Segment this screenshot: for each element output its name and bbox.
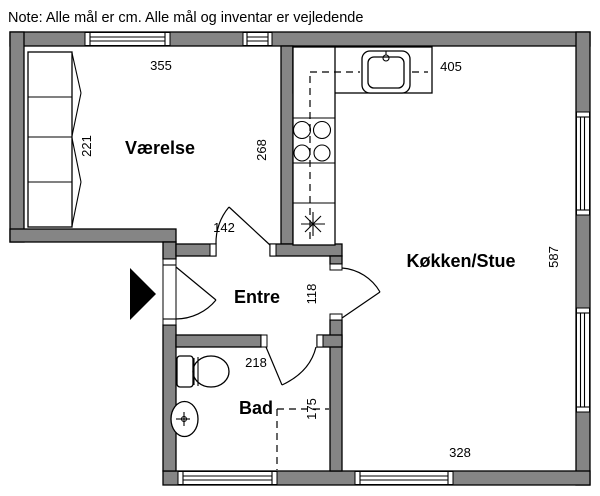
floorplan-page: Note: Alle mål er cm. Alle mål og invent… <box>0 0 600 496</box>
jamb <box>317 335 323 347</box>
dim-142: 142 <box>213 220 235 235</box>
dim-175: 175 <box>304 398 319 420</box>
dim-221: 221 <box>79 135 94 157</box>
jamb <box>330 264 342 270</box>
label-entre: Entre <box>234 287 280 307</box>
wall-vaerelse-entre-right <box>270 244 342 256</box>
dim-218: 218 <box>245 355 267 370</box>
washbasin-icon <box>171 402 198 437</box>
dim-328: 328 <box>449 445 471 460</box>
wall-entre-koekken-stub <box>330 256 342 264</box>
dim-118: 118 <box>304 284 319 305</box>
entrance-threshold <box>163 259 176 325</box>
jamb <box>270 244 276 256</box>
dim-587: 587 <box>546 246 561 268</box>
wall-step <box>10 229 176 242</box>
window-east-1 <box>577 112 590 215</box>
dim-355: 355 <box>150 58 172 73</box>
koekken-door-swing-icon <box>342 268 380 318</box>
jamb <box>330 314 342 320</box>
window-east-2 <box>577 308 590 412</box>
sink-icon <box>362 51 410 93</box>
wardrobe-icon <box>28 52 81 227</box>
toilet-icon <box>177 356 229 387</box>
entrance-arrow-icon <box>130 268 156 320</box>
dim-405: 405 <box>440 59 462 74</box>
wall-vaerelse-koekken <box>281 46 293 244</box>
window-south-bad <box>178 472 277 485</box>
bad-door-swing-icon <box>266 347 316 385</box>
wall-west-lower-a <box>163 242 176 259</box>
label-koekken-stue: Køkken/Stue <box>406 251 515 271</box>
kitchen-counter <box>293 47 432 245</box>
wall-west-lower-b <box>163 325 176 471</box>
wall-east <box>576 32 590 485</box>
shower-area <box>277 409 329 470</box>
label-vaerelse: Værelse <box>125 138 195 158</box>
entrance-door-swing-icon <box>176 267 216 319</box>
note-text: Note: Alle mål er cm. Alle mål og invent… <box>8 10 363 26</box>
label-bad: Bad <box>239 398 273 418</box>
window-north-2 <box>243 33 272 46</box>
wall-entre-bad-left <box>176 335 261 347</box>
wall-west-upper <box>10 32 24 242</box>
window-south-koekken <box>355 472 453 485</box>
jamb <box>261 335 267 347</box>
window-north-1 <box>85 33 170 46</box>
jamb <box>210 244 216 256</box>
entrance-door-opening <box>163 259 176 325</box>
floorplan-drawing: Note: Alle mål er cm. Alle mål og invent… <box>0 0 600 496</box>
dim-268: 268 <box>254 139 269 161</box>
